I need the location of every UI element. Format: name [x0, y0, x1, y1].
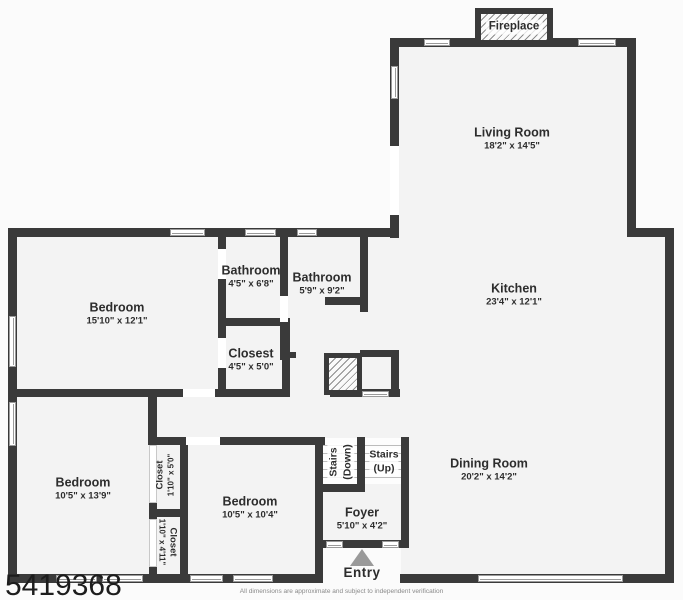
- room-label-kitchen: Kitchen 23'4" x 12'1": [486, 281, 542, 310]
- wall-segment: [280, 352, 296, 358]
- wall-segment: [391, 350, 399, 397]
- window: [578, 39, 616, 46]
- wall-segment: [627, 38, 636, 237]
- room-label-bedroom-main: Bedroom 15'10" x 12'1": [86, 300, 147, 329]
- window: [362, 391, 389, 397]
- window: [478, 575, 623, 582]
- room-label-closet-lower: Closet 1'10" x 4'11": [156, 519, 179, 566]
- wall-segment: [322, 484, 365, 492]
- disclaimer-text: All dimensions are approximate and subje…: [240, 588, 443, 595]
- watermark-id: 5419368: [5, 569, 122, 600]
- entry-label: Entry: [343, 564, 380, 582]
- door-opening: [280, 296, 288, 322]
- room-label-bathroom-hall: Bathroom 4'5" x 6'8": [221, 263, 280, 292]
- door-opening: [186, 437, 220, 445]
- room-label-closet-hall: Closest 4'5" x 5'0": [228, 346, 273, 375]
- wall-segment: [149, 567, 157, 583]
- room-label-foyer: Foyer 5'10" x 4'2": [337, 505, 388, 534]
- room-label-bedroom-left: Bedroom 10'5" x 13'9": [55, 475, 111, 504]
- door-opening: [218, 338, 226, 368]
- room-label-living-room: Living Room 18'2" x 14'5": [474, 125, 550, 154]
- window: [9, 402, 16, 446]
- window: [297, 229, 317, 236]
- wall-segment: [401, 437, 409, 548]
- stairs-down-label: Stairs (Down): [327, 444, 354, 480]
- stairs-up-label: Stairs (Up): [369, 448, 398, 475]
- window: [245, 229, 276, 236]
- fireplace-label: Fireplace: [486, 20, 543, 35]
- window: [190, 575, 223, 582]
- room-label-bathroom-main: Bathroom 5'9" x 9'2": [292, 270, 351, 299]
- wall-segment: [665, 228, 674, 583]
- chimney-hatch: [324, 353, 362, 395]
- window: [424, 39, 450, 46]
- window: [9, 316, 16, 367]
- wall-segment: [149, 509, 188, 517]
- window: [391, 66, 398, 99]
- door-opening: [183, 389, 215, 397]
- door-opening: [390, 146, 399, 215]
- window: [326, 541, 343, 548]
- wall-segment: [220, 437, 325, 445]
- room-label-closet-upper: Closet 1'10" x 5'0": [155, 454, 178, 497]
- room-label-bedroom-mid: Bedroom 10'5" x 10'4": [222, 494, 278, 523]
- room-label-dining-room: Dining Room 20'2" x 14'2": [450, 456, 528, 485]
- window: [233, 575, 273, 582]
- window: [382, 541, 399, 548]
- floorplan-canvas: Fireplace Living Room 18'2" x 14'5" Kitc…: [0, 0, 683, 600]
- wall-segment: [215, 389, 290, 397]
- wall-segment: [315, 437, 323, 583]
- window: [170, 229, 205, 236]
